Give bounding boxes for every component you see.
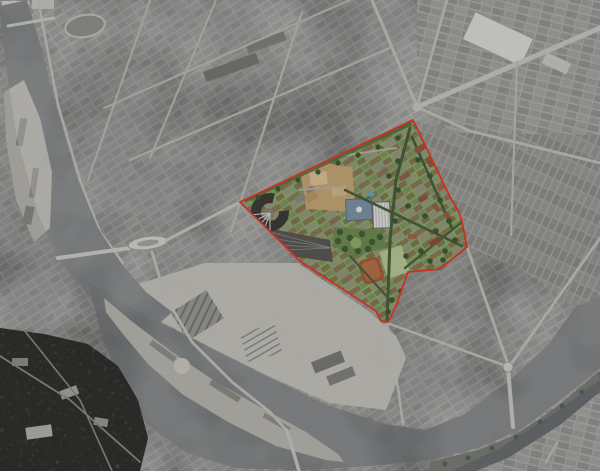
scene-layers bbox=[0, 0, 600, 471]
photo-grain bbox=[0, 0, 600, 471]
screenshot-root bbox=[0, 0, 600, 471]
aerial-photo-map bbox=[0, 0, 600, 471]
